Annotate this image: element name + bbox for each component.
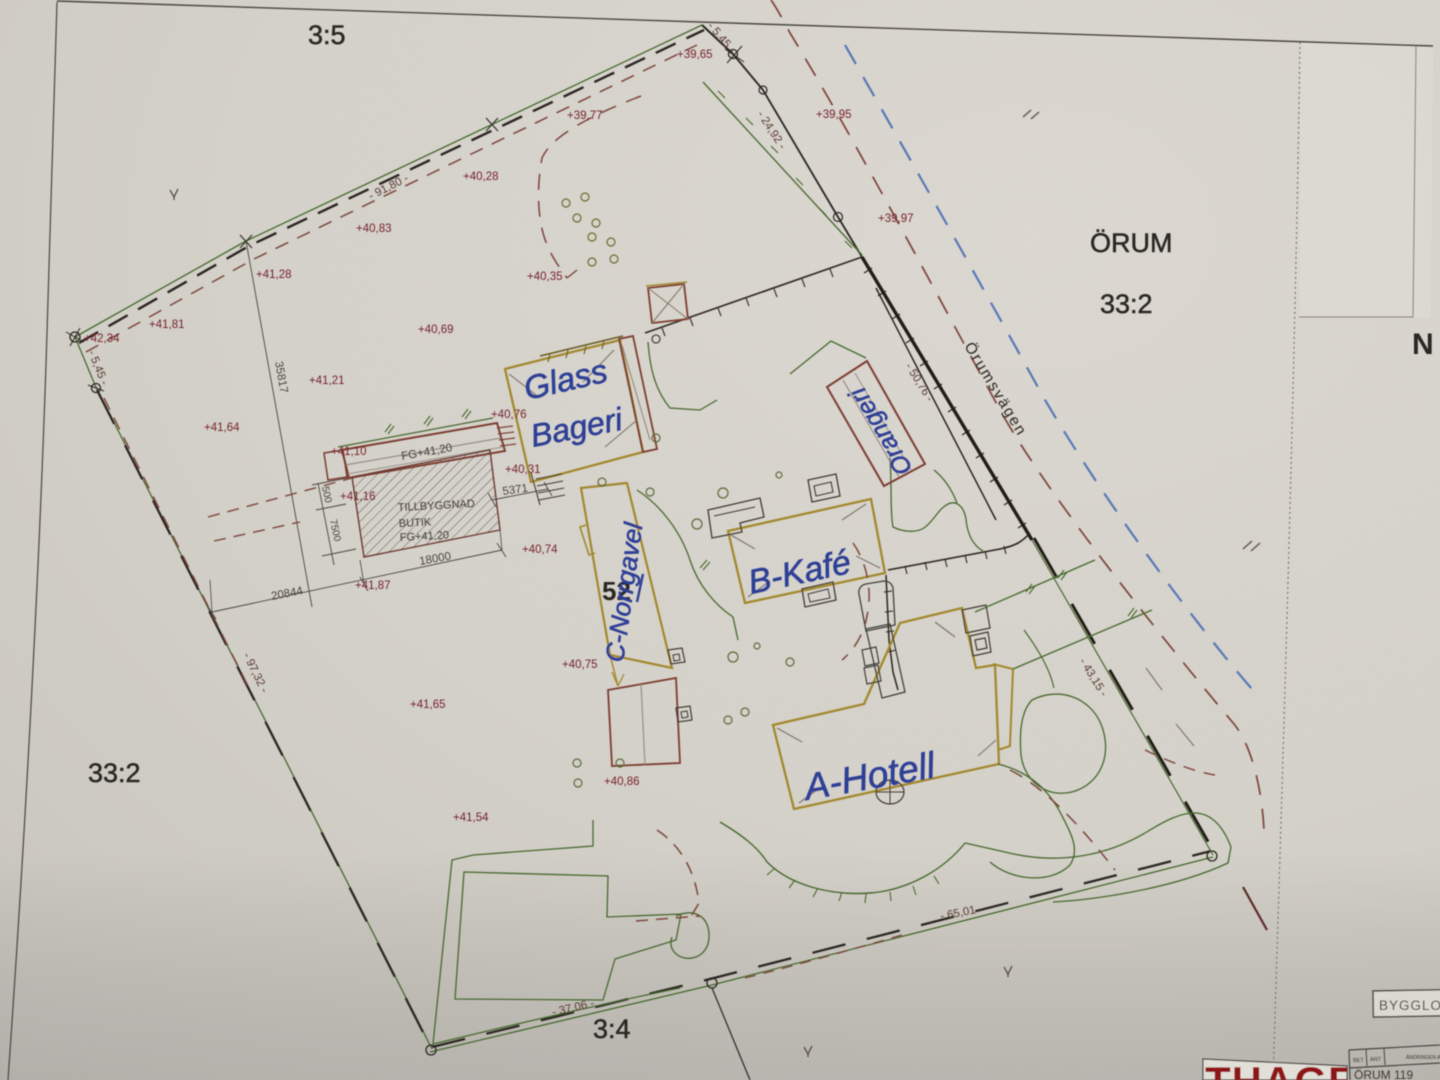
svg-text:ÄNDRINGEN AVSER: ÄNDRINGEN AVSER	[1406, 1054, 1440, 1061]
svg-text:+41,81: +41,81	[149, 319, 185, 331]
svg-text:BET: BET	[1353, 1058, 1364, 1064]
svg-text:+39,65: +39,65	[677, 49, 713, 61]
svg-text:BYGGLOVS: BYGGLOVS	[1379, 998, 1440, 1013]
svg-text:+39,97: +39,97	[878, 213, 914, 225]
svg-text:+41,10: +41,10	[331, 446, 367, 458]
svg-text:+41,65: +41,65	[410, 699, 446, 711]
svg-text:ANT: ANT	[1370, 1057, 1382, 1063]
svg-text:+41,87: +41,87	[355, 580, 391, 592]
svg-text:+40,76: +40,76	[491, 409, 527, 421]
svg-text:ÖRUM: ÖRUM	[1090, 228, 1173, 258]
svg-text:+41,21: +41,21	[309, 375, 345, 387]
svg-text:3:4: 3:4	[593, 1014, 631, 1044]
svg-text:+40,83: +40,83	[356, 223, 392, 235]
svg-text:33:2: 33:2	[88, 758, 141, 788]
svg-text:+42,34: +42,34	[84, 333, 120, 345]
svg-text:+40,28: +40,28	[463, 171, 499, 183]
svg-text:+41,16: +41,16	[340, 491, 376, 503]
svg-text:+41,54: +41,54	[453, 812, 489, 824]
svg-text:+40,74: +40,74	[522, 544, 558, 556]
svg-text:+40,35: +40,35	[527, 271, 563, 283]
svg-text:+40,31: +40,31	[505, 464, 541, 476]
svg-text:+40,75: +40,75	[562, 659, 598, 671]
svg-text:BUTIK: BUTIK	[399, 516, 433, 530]
svg-text:+40,86: +40,86	[604, 776, 640, 788]
svg-text:ÖRUM 119: ÖRUM 119	[1354, 1068, 1413, 1080]
svg-text:+40,69: +40,69	[418, 324, 454, 336]
svg-text:+41,28: +41,28	[256, 269, 292, 281]
svg-text:+41,64: +41,64	[204, 422, 240, 434]
svg-text:N: N	[1412, 328, 1434, 361]
svg-text:3:5: 3:5	[308, 20, 346, 50]
svg-text:+39,77: +39,77	[567, 110, 603, 122]
svg-text:+39,95: +39,95	[816, 109, 852, 121]
svg-text:33:2: 33:2	[1100, 289, 1153, 319]
